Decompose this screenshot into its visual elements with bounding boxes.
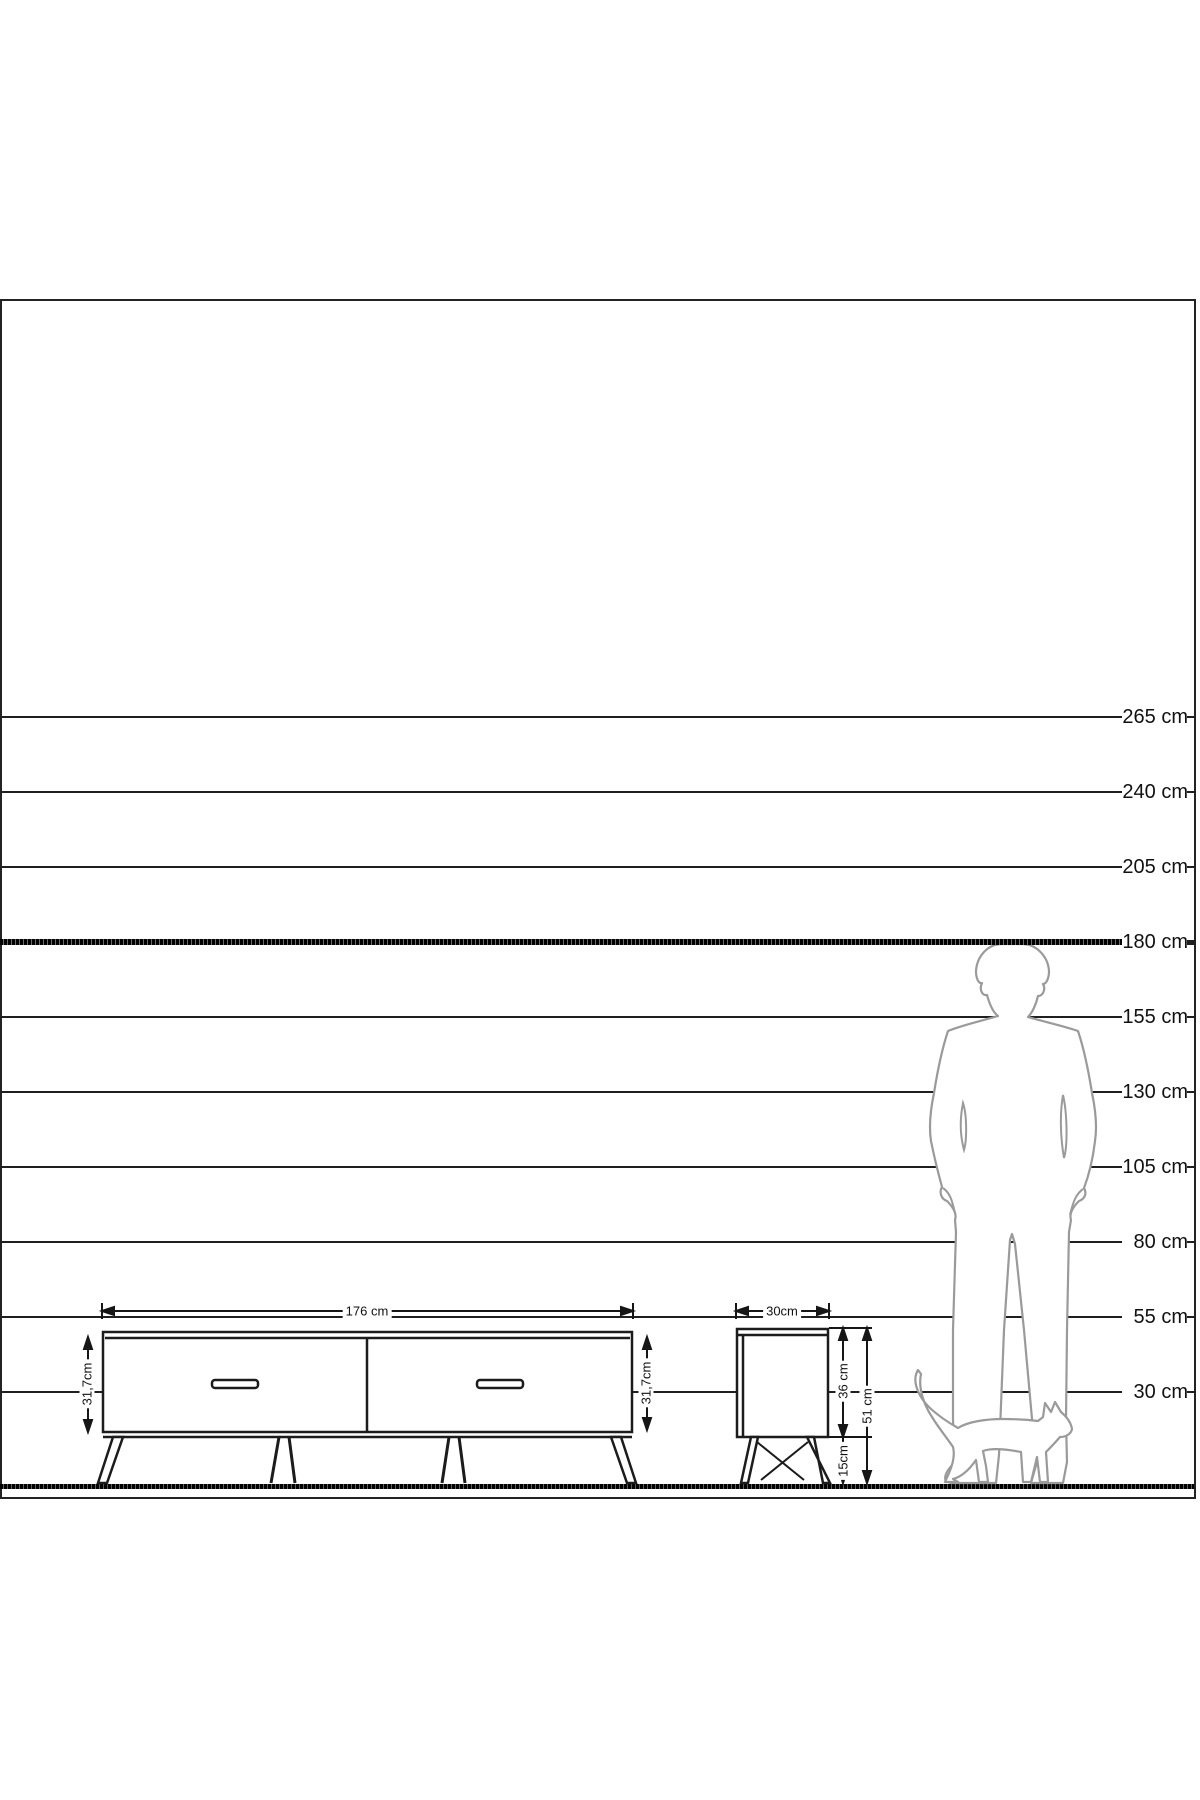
table-width-label: 30cm <box>763 1304 801 1319</box>
side-table <box>737 1329 830 1483</box>
table-leg-height-label: 15cm <box>836 1442 851 1480</box>
tv-stand <box>98 1332 636 1483</box>
table-total-height-label: 51 cm <box>860 1385 875 1426</box>
man-silhouette <box>930 944 1096 1483</box>
table-body-height-label: 36 cm <box>836 1360 851 1401</box>
diagram-artwork <box>0 0 1200 1800</box>
tv-height-label-left: 31,7cm <box>80 1360 95 1409</box>
tv-height-label-right: 31,7cm <box>639 1359 654 1408</box>
furniture-scale-diagram: 265 cm 240 cm 205 cm 180 cm 155 cm 130 c… <box>0 0 1200 1800</box>
tv-width-label: 176 cm <box>343 1304 392 1319</box>
